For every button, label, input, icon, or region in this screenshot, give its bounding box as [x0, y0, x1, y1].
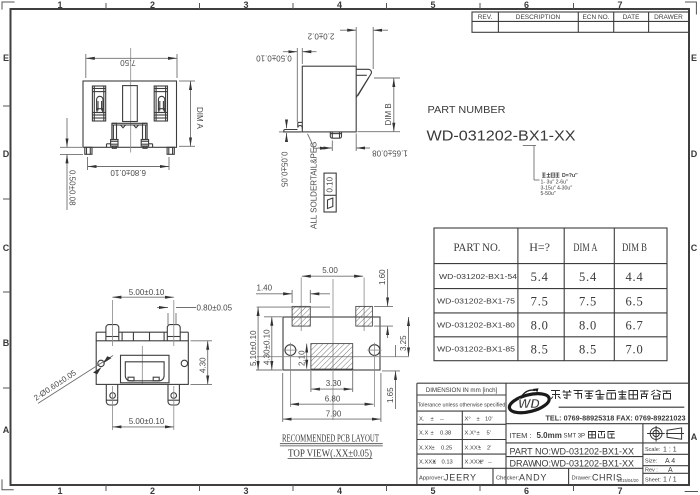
svg-text:Drawer:: Drawer:	[572, 476, 593, 482]
svg-text:Sheet:: Sheet:	[645, 477, 661, 483]
svg-text:±: ±	[480, 460, 483, 466]
svg-text:2.0±0.2: 2.0±0.2	[307, 32, 334, 41]
svg-text:WD-031202-BX1-54: WD-031202-BX1-54	[439, 272, 517, 281]
svg-text:WD: WD	[518, 396, 540, 411]
svg-text:PART NO.: PART NO.	[454, 240, 501, 254]
svg-text:C: C	[3, 243, 10, 253]
svg-text:2: 2	[150, 0, 155, 10]
svg-text:D: D	[3, 149, 10, 159]
svg-text:±: ±	[431, 417, 434, 423]
svg-text:5.10±0.10: 5.10±0.10	[249, 330, 258, 366]
svg-text:±: ±	[478, 446, 481, 452]
svg-text:8.5: 8.5	[579, 343, 597, 357]
svg-text:0.13: 0.13	[442, 460, 453, 466]
svg-text:B: B	[3, 338, 10, 348]
svg-text:X.X°: X.X°	[465, 431, 477, 437]
svg-text:7: 7	[617, 0, 622, 10]
svg-text:H=?: H=?	[529, 240, 550, 254]
svg-text:PART NUMBER: PART NUMBER	[428, 104, 506, 116]
svg-text:6.80±0.10: 6.80±0.10	[110, 168, 146, 177]
svg-text:DATE: DATE	[623, 14, 641, 21]
svg-text:PART: PART	[510, 447, 534, 457]
svg-text:5.4: 5.4	[531, 270, 549, 284]
svg-text:±: ±	[477, 417, 480, 423]
svg-text:--: --	[488, 460, 492, 466]
svg-text:8.0: 8.0	[531, 319, 549, 333]
svg-text:DIMENSION IN mm [inch]: DIMENSION IN mm [inch]	[426, 387, 498, 394]
svg-text:5: 5	[430, 486, 435, 495]
svg-text:ECN NO.: ECN NO.	[582, 14, 609, 21]
svg-text:NO:WD-031202-BX1-XX: NO:WD-031202-BX1-XX	[535, 459, 635, 470]
svg-text:DRAWER: DRAWER	[654, 14, 683, 21]
svg-text:7.90: 7.90	[326, 410, 342, 419]
svg-text:1.65±0.08: 1.65±0.08	[372, 149, 408, 158]
svg-text:Scale:: Scale:	[645, 447, 661, 453]
svg-text:WD-031202-BX1-75: WD-031202-BX1-75	[437, 297, 515, 306]
svg-text:1.65: 1.65	[386, 387, 395, 403]
svg-text:1.40: 1.40	[257, 284, 273, 293]
svg-text:A: A	[3, 425, 10, 435]
svg-text:X.: X.	[419, 417, 425, 423]
svg-text:A 4: A 4	[665, 458, 675, 465]
svg-text:TOP VIEW(.XX±0.05): TOP VIEW(.XX±0.05)	[288, 448, 372, 459]
svg-text:WD-031202-BX1-XX: WD-031202-BX1-XX	[427, 128, 576, 145]
svg-text:7.5: 7.5	[531, 295, 549, 309]
svg-text:X.XX: X.XX	[419, 446, 432, 452]
svg-text:5.00±0.10: 5.00±0.10	[129, 288, 165, 297]
svg-text:5.00: 5.00	[322, 266, 338, 275]
svg-text:A: A	[668, 467, 673, 474]
svg-text:DIM A: DIM A	[573, 240, 597, 254]
svg-text:5-50u″: 5-50u″	[541, 191, 556, 197]
svg-text:Rev :: Rev :	[645, 468, 658, 474]
svg-text:4.4: 4.4	[625, 270, 643, 284]
svg-text:DIM B: DIM B	[622, 240, 647, 254]
svg-text:1.60: 1.60	[378, 269, 387, 285]
svg-text:RECOMMENDED PCB LAYOUT: RECOMMENDED PCB LAYOUT	[282, 434, 379, 445]
svg-text:5.0mm: 5.0mm	[537, 431, 562, 440]
svg-text:0.50±0.08: 0.50±0.08	[68, 170, 77, 206]
svg-text:7.0: 7.0	[625, 343, 643, 357]
svg-text:4.30: 4.30	[199, 357, 208, 373]
svg-text:E: E	[3, 53, 9, 63]
svg-text:4: 4	[337, 0, 342, 10]
svg-text:7.5: 7.5	[579, 295, 597, 309]
svg-text:DIM A: DIM A	[195, 107, 204, 129]
svg-text:TEL: 0769-88925318 FAX: 0769-: TEL: 0769-88925318 FAX: 0769-89221023	[546, 414, 686, 423]
svg-text:3: 3	[243, 0, 248, 10]
svg-text:4.30±0.10: 4.30±0.10	[262, 329, 271, 365]
svg-text:REV.: REV.	[478, 14, 493, 21]
svg-text:0.50±0.10: 0.50±0.10	[256, 54, 292, 63]
svg-text:6.5: 6.5	[625, 295, 643, 309]
svg-text:5.4: 5.4	[579, 270, 597, 284]
svg-text:5.00±0.10: 5.00±0.10	[129, 417, 165, 426]
svg-text:0.38: 0.38	[440, 431, 451, 437]
svg-text:DIM B: DIM B	[384, 103, 393, 125]
svg-text:WD-031202-BX1-80: WD-031202-BX1-80	[437, 321, 515, 330]
svg-text:3.25: 3.25	[399, 335, 408, 351]
svg-text:2.10: 2.10	[297, 350, 306, 366]
svg-text:E: E	[691, 53, 697, 63]
svg-text:X°: X°	[465, 417, 471, 423]
svg-text:1 / 1: 1 / 1	[663, 477, 677, 484]
svg-text:7.50: 7.50	[120, 58, 136, 67]
svg-text:6: 6	[524, 486, 529, 495]
svg-text:0.80±0.05: 0.80±0.05	[197, 304, 233, 313]
svg-text:8.5: 8.5	[531, 343, 549, 357]
svg-text:ALL SOLDERTAIL&PEG: ALL SOLDERTAIL&PEG	[310, 142, 319, 229]
svg-text:±: ±	[477, 431, 480, 437]
svg-text:±: ±	[433, 460, 436, 466]
svg-text:2015/04/20: 2015/04/20	[618, 478, 640, 483]
svg-text:3.30: 3.30	[326, 379, 342, 388]
svg-text:6.7: 6.7	[625, 319, 643, 333]
svg-text:10': 10'	[485, 417, 493, 423]
svg-text:D=?u″: D=?u″	[562, 173, 578, 179]
svg-text:2: 2	[150, 486, 155, 495]
svg-text:X.X: X.X	[419, 431, 428, 437]
svg-text:NO:WD-031202-BX1-XX: NO:WD-031202-BX1-XX	[535, 447, 635, 458]
svg-text:3: 3	[243, 486, 248, 495]
svg-text:0.10: 0.10	[326, 176, 335, 192]
svg-text:Approver:: Approver:	[419, 476, 445, 482]
svg-text:DRAW: DRAW	[510, 459, 538, 469]
svg-text:±: ±	[431, 431, 434, 437]
svg-text:0.05±0.05: 0.05±0.05	[280, 152, 289, 188]
svg-text:1: 1	[57, 486, 62, 495]
svg-text:ANDY: ANDY	[519, 473, 547, 483]
svg-text:--: --	[440, 417, 444, 423]
svg-text:5: 5	[430, 0, 435, 10]
svg-text:±: ±	[432, 446, 435, 452]
svg-text:5': 5'	[487, 431, 491, 437]
svg-text:SMT 3P: SMT 3P	[564, 433, 586, 439]
svg-text:Checker:: Checker:	[496, 476, 520, 482]
svg-text:JEERY: JEERY	[444, 473, 477, 483]
svg-text:A: A	[691, 432, 698, 442]
svg-text:C: C	[691, 243, 698, 253]
svg-text:ITEM :: ITEM :	[510, 431, 532, 440]
svg-text:WD-031202-BX1-85: WD-031202-BX1-85	[437, 345, 515, 354]
svg-text:DESCRIPTION: DESCRIPTION	[516, 14, 561, 21]
svg-text:6.80: 6.80	[325, 394, 341, 403]
svg-text:0.25: 0.25	[441, 446, 452, 452]
svg-text:D: D	[691, 149, 698, 159]
svg-text:Tolerance unless otherwise spe: Tolerance unless otherwise specified	[418, 402, 506, 408]
svg-text:1 : 1: 1 : 1	[663, 447, 677, 454]
svg-text:Size:: Size:	[645, 459, 658, 465]
svg-text:7: 7	[617, 486, 622, 495]
svg-text:4: 4	[337, 486, 342, 495]
svg-text:8.0: 8.0	[579, 319, 597, 333]
svg-text:2': 2'	[487, 446, 491, 452]
svg-text:1: 1	[57, 0, 62, 10]
svg-text:6: 6	[524, 0, 529, 10]
